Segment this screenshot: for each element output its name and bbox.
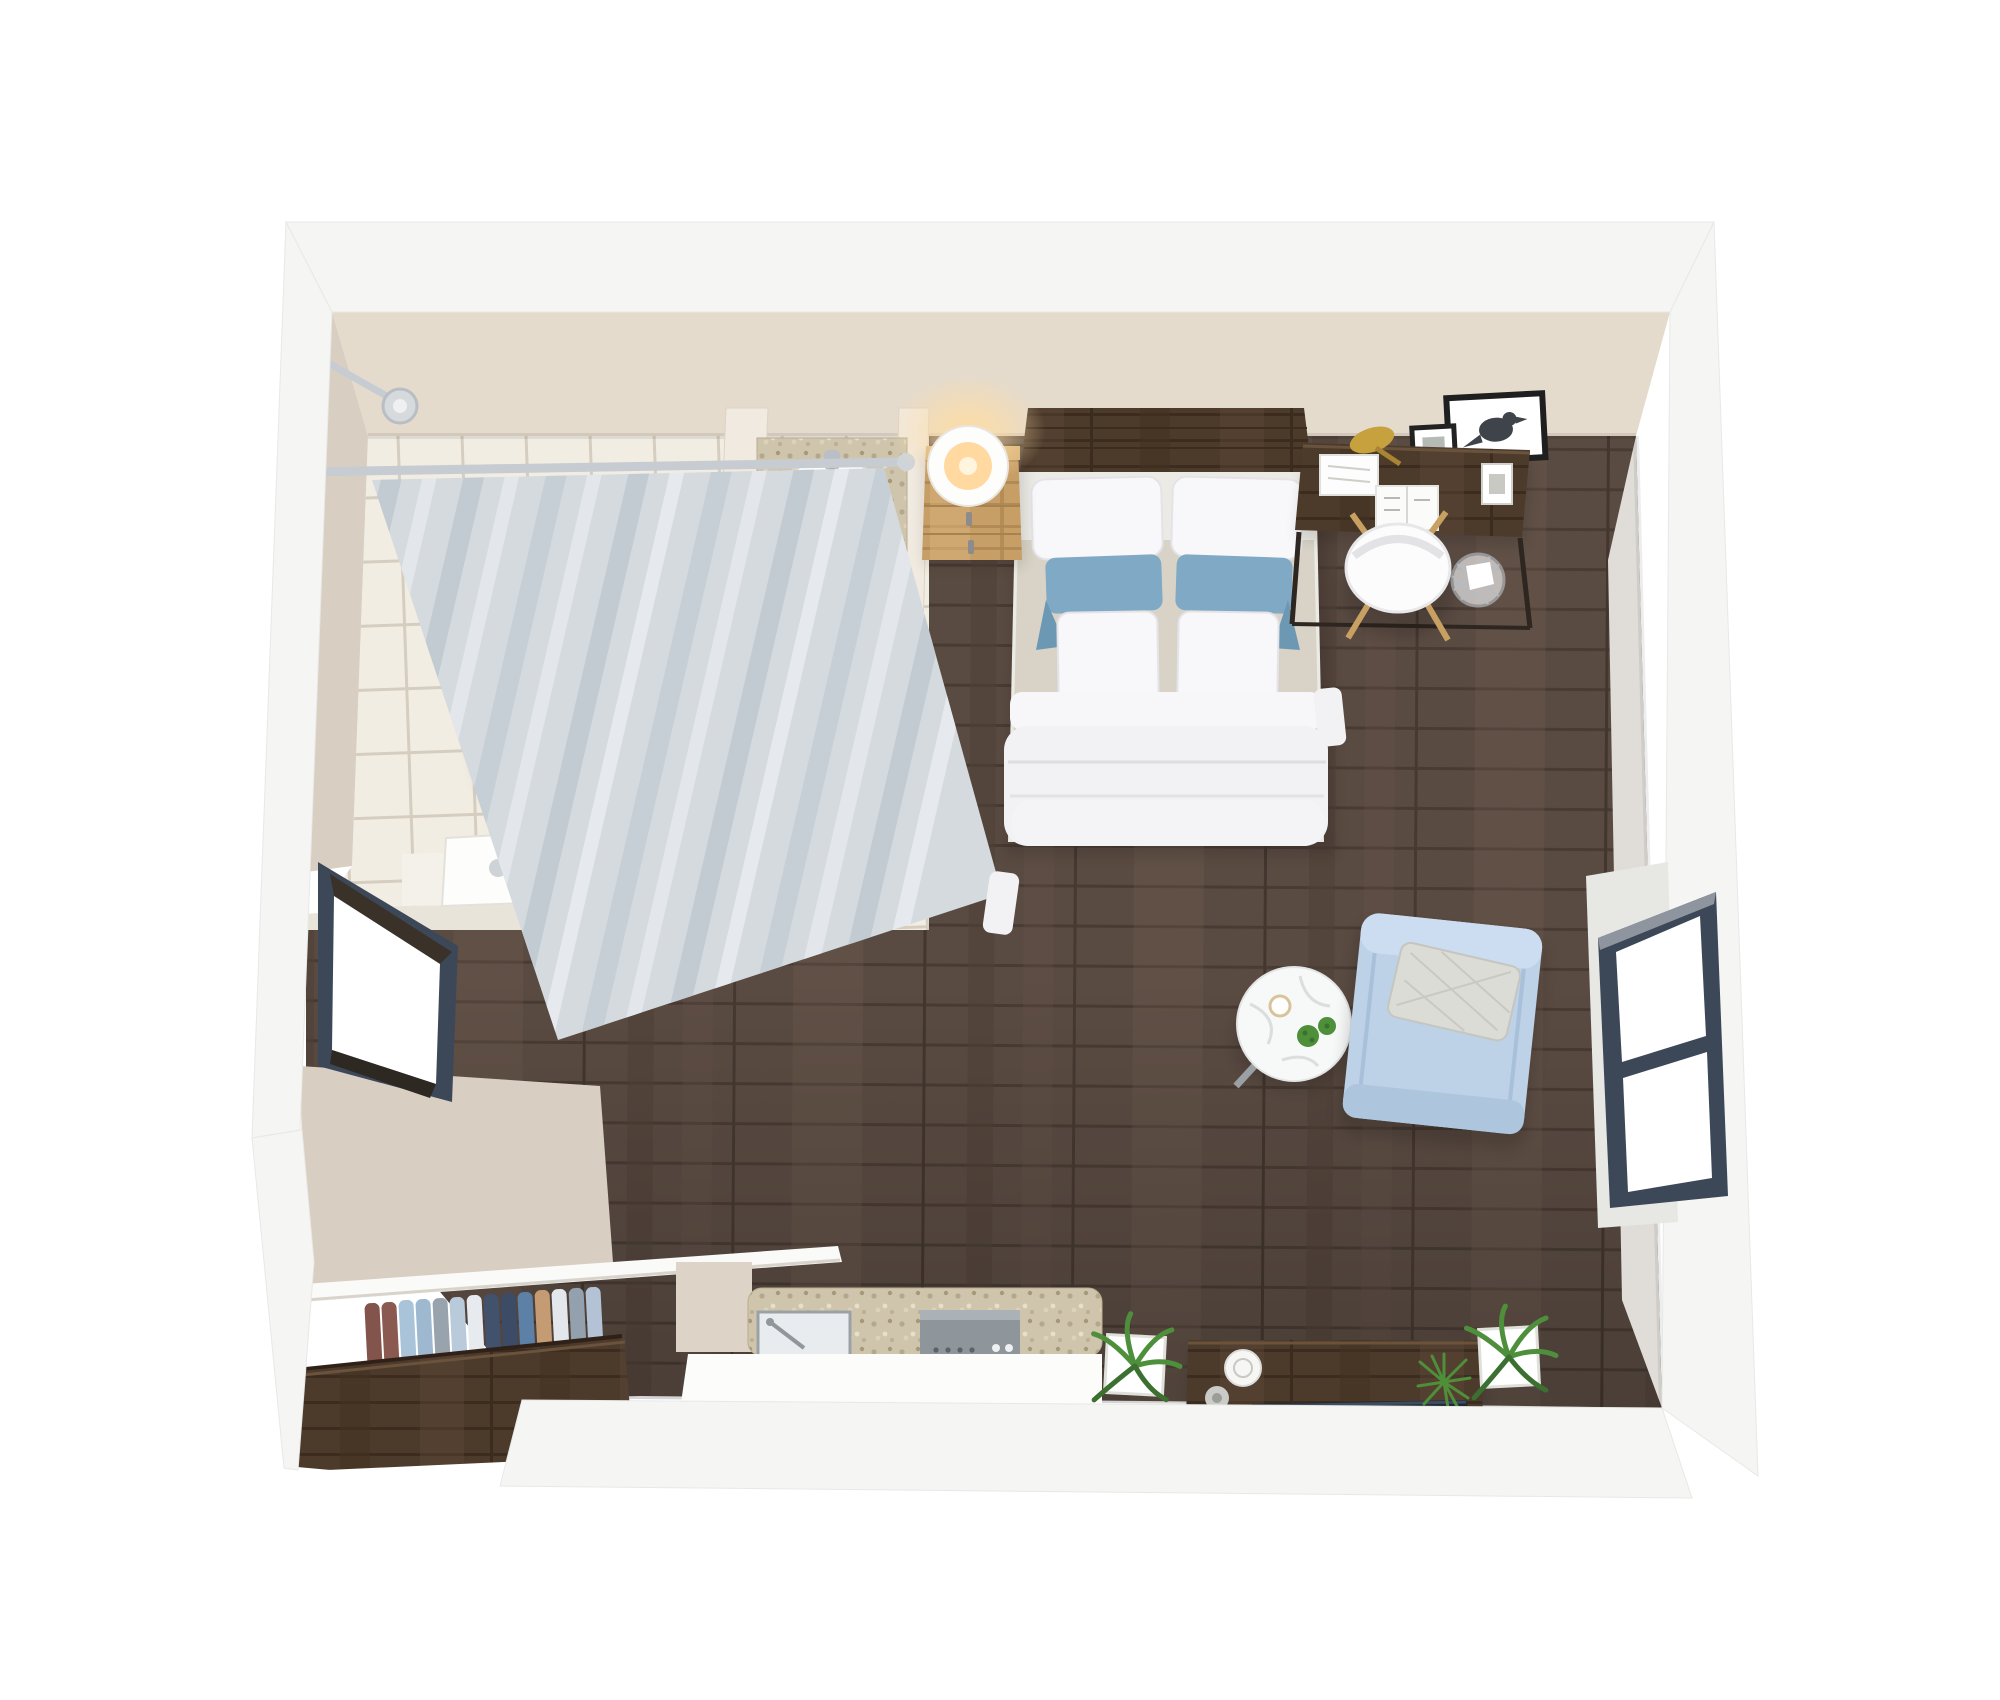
front-pillow-left: [1057, 611, 1159, 705]
table-succulent: [1297, 1025, 1319, 1047]
succulent-detail: [1303, 1031, 1308, 1036]
duvet-fold-top: [1010, 692, 1322, 730]
succulent-detail: [1310, 1038, 1315, 1043]
cooktop-knob: [945, 1347, 950, 1352]
cooktop-switch: [992, 1344, 1000, 1352]
southwest-wall-inner-face: [300, 1066, 614, 1296]
kitchen-pillar: [676, 1262, 752, 1352]
front-pillow-right: [1177, 611, 1279, 705]
desk-paper-tray: [1320, 455, 1378, 495]
north-wall: [286, 222, 1714, 312]
south-wall: [500, 1400, 1692, 1498]
table-lamp-bulb: [959, 457, 977, 475]
shower-head-center: [393, 399, 407, 413]
bed-headboard: [1020, 408, 1312, 472]
floor-plan-canvas: [0, 0, 2000, 1700]
coffee-cup: [1270, 996, 1290, 1016]
media-disc-center: [1212, 1393, 1222, 1403]
kitchen-faucet-base: [766, 1318, 774, 1326]
accent-pillow-right: [1175, 554, 1293, 614]
card-frame-art: [1489, 474, 1505, 494]
speaker: [1225, 1350, 1261, 1386]
nightstand-handle: [966, 512, 972, 526]
cooktop-knob: [933, 1347, 938, 1352]
cooktop-switch: [1005, 1344, 1013, 1352]
coffee-table: [1234, 967, 1354, 1090]
cooktop-knob: [957, 1347, 962, 1352]
right-window: [1586, 862, 1728, 1228]
duvet-bottom-roll: [1012, 800, 1324, 846]
cooktop-knob: [969, 1347, 974, 1352]
back-pillow-right: [1171, 476, 1303, 559]
floor-plan-svg: [0, 0, 2000, 1700]
cooktop-top-edge: [920, 1310, 1020, 1320]
back-pillow-left: [1031, 476, 1163, 559]
succulent-detail: [1325, 1024, 1330, 1029]
accent-pillow-left: [1045, 554, 1163, 614]
nightstand-handle: [968, 540, 974, 554]
armchair: [1336, 911, 1548, 1152]
